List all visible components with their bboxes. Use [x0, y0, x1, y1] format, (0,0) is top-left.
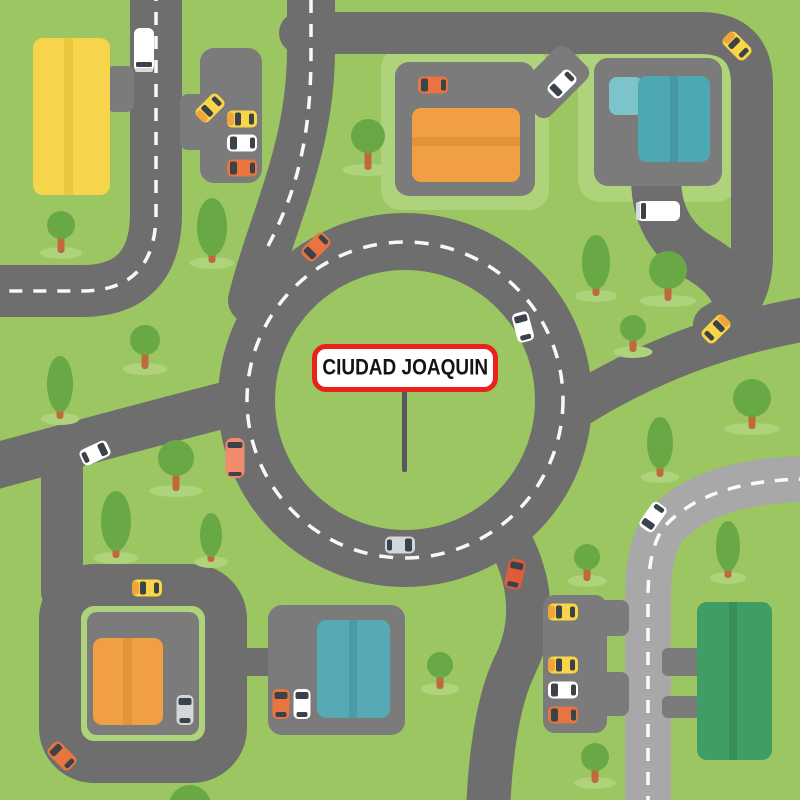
- teal-building-south: [317, 620, 390, 718]
- van: [226, 438, 245, 478]
- car: [548, 707, 578, 724]
- car: [227, 135, 257, 152]
- orange-building-sw: [93, 638, 163, 725]
- taxi-car: [227, 111, 257, 128]
- parking-se-stub-2: [595, 672, 629, 716]
- city-map-illustration: [0, 0, 800, 800]
- orange-building-north: [412, 108, 520, 182]
- car: [294, 689, 311, 719]
- city-map-root: CIUDAD JOAQUIN: [0, 0, 800, 800]
- car: [227, 160, 257, 177]
- taxi-car: [548, 604, 578, 621]
- truck: [134, 28, 154, 72]
- city-sign: CIUDAD JOAQUIN: [312, 344, 498, 392]
- teal-building-ne-annex: [609, 77, 643, 115]
- car: [418, 77, 448, 94]
- car: [273, 689, 290, 719]
- green-building-driveway-2: [662, 696, 702, 718]
- yellow-building-driveway: [106, 66, 134, 112]
- taxi-car: [132, 580, 162, 597]
- car: [548, 682, 578, 699]
- truck: [636, 201, 680, 221]
- city-sign-text: CIUDAD JOAQUIN: [322, 355, 488, 381]
- car: [385, 537, 415, 554]
- green-building-driveway-1: [662, 648, 702, 676]
- parking-se-stub-1: [595, 600, 629, 636]
- yellow-building: [33, 38, 110, 195]
- loop-plaza-stub: [220, 648, 276, 676]
- car: [177, 695, 194, 725]
- taxi-car: [548, 657, 578, 674]
- green-building-se: [697, 602, 772, 760]
- sign-pole: [402, 390, 407, 472]
